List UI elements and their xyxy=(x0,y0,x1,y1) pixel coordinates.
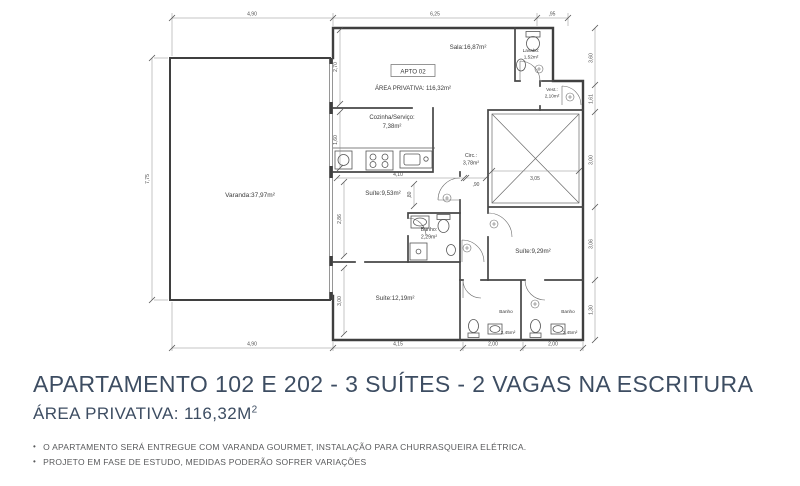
room-label-suite-1219: Suíte:12,19m² xyxy=(376,295,415,302)
area-privativa-line: ÁREA PRIVATIVA: 116,32M2 xyxy=(33,404,778,424)
note-text: O APARTAMENTO SERÁ ENTREGUE COM VARANDA … xyxy=(43,442,526,452)
room-label-vest-area: 2,10m² xyxy=(545,94,560,99)
dim-label: 2,86 xyxy=(337,214,343,224)
bullet-icon: • xyxy=(33,442,36,452)
stove-icon xyxy=(366,151,393,170)
dim-label: ,95 xyxy=(549,12,556,18)
room-label-lavabo: Lavabo: xyxy=(523,48,540,53)
toilet-icon xyxy=(530,333,541,338)
dim-label: 4,90 xyxy=(247,342,257,348)
dim-label: 2,00 xyxy=(488,342,498,348)
washer-icon xyxy=(335,151,352,169)
dim-label: 4,10 xyxy=(393,172,403,178)
bidet-icon xyxy=(447,245,456,256)
room-label-cozinha: Cozinha/Serviço: xyxy=(369,115,415,121)
dim-label: 3,00 xyxy=(337,296,343,306)
apto-label: APTO 02 xyxy=(400,69,426,76)
symbol-circle xyxy=(490,220,498,228)
sink-icon xyxy=(400,151,432,168)
plan-area-label: ÁREA PRIVATIVA: 116,32m² xyxy=(375,85,451,92)
dim-label: 3,06 xyxy=(589,239,595,249)
room-label-varanda: Varanda:37,97m² xyxy=(225,192,276,199)
dim-label: 2,00 xyxy=(548,342,558,348)
service-shaft xyxy=(492,114,579,203)
dim-label: 3,60 xyxy=(589,53,595,63)
headline: APARTAMENTO 102 E 202 - 3 SUÍTES - 2 VAG… xyxy=(33,372,778,396)
symbol-circle xyxy=(463,244,471,252)
area-privativa-text: ÁREA PRIVATIVA: 116,32M xyxy=(33,404,252,423)
dim-label: 1,61 xyxy=(589,94,595,104)
symbol-circle xyxy=(566,93,574,101)
room-label-cozinha-area: 7,38m² xyxy=(383,124,402,130)
toilet-icon xyxy=(468,333,479,338)
footer-text-block: APARTAMENTO 102 E 202 - 3 SUÍTES - 2 VAG… xyxy=(33,372,778,472)
notes-list: •O APARTAMENTO SERÁ ENTREGUE COM VARANDA… xyxy=(33,442,778,467)
room-labels: APTO 02 ÁREA PRIVATIVA: 116,32m² Varanda… xyxy=(225,44,578,335)
dim-label: 1,30 xyxy=(589,305,595,315)
dim-label: 2,70 xyxy=(333,62,339,72)
room-label-suite-953: Suíte:9,53m² xyxy=(365,190,400,197)
dim-label: 7,75 xyxy=(145,174,151,184)
room-label-banho-esq-area: 2,45m² xyxy=(501,330,516,335)
room-label-suite-929: Suíte:9,29m² xyxy=(515,248,550,255)
room-label-vest: Vest.: xyxy=(546,87,558,92)
room-label-banho-suite-area: 2,29m² xyxy=(421,235,437,241)
dim-label: 1,60 xyxy=(333,135,339,145)
symbol-circle xyxy=(531,300,539,308)
toilet-icon xyxy=(437,215,450,220)
symbol-circle xyxy=(443,194,451,202)
dimension-labels: 4,90 6,25 ,95 4,90 4,15 2,00 2,00 7,75 3… xyxy=(145,12,595,348)
room-label-banho-dir: Banho xyxy=(561,309,575,314)
note-item: •O APARTAMENTO SERÁ ENTREGUE COM VARANDA… xyxy=(33,442,778,452)
room-label-banho-esq: Banho xyxy=(499,309,513,314)
kitchen-fixtures xyxy=(333,148,435,170)
room-label-banho-suite: Banho: xyxy=(421,227,437,233)
dim-label: 6,25 xyxy=(430,12,440,18)
room-label-circ: Circ.: xyxy=(465,153,477,159)
dim-label: ,90 xyxy=(473,182,480,188)
banho-dir-fixtures xyxy=(530,320,565,338)
room-label-lavabo-area: 1,52m² xyxy=(524,55,539,60)
floor-plan-drawing: 4,90 6,25 ,95 4,90 4,15 2,00 2,00 7,75 3… xyxy=(0,0,800,370)
dim-label: 4,15 xyxy=(393,342,403,348)
bullet-icon: • xyxy=(33,457,36,467)
room-label-banho-dir-area: 2,45m² xyxy=(563,330,578,335)
dim-label: 3,00 xyxy=(589,155,595,165)
flyer-page: 4,90 6,25 ,95 4,90 4,15 2,00 2,00 7,75 3… xyxy=(0,0,800,486)
note-item: •PROJETO EM FASE DE ESTUDO, MEDIDAS PODE… xyxy=(33,457,778,467)
interior-walls xyxy=(333,28,583,340)
dim-label: 3,05 xyxy=(530,176,540,182)
banho-esq-fixtures xyxy=(468,320,502,338)
area-superscript: 2 xyxy=(252,404,258,415)
dim-label: ,80 xyxy=(407,191,413,198)
shower-icon xyxy=(410,243,427,260)
room-label-sala: Sala:16,87m² xyxy=(450,44,487,51)
room-label-circ-area: 3,78m² xyxy=(463,161,479,167)
dim-label: 4,90 xyxy=(247,12,257,18)
note-text: PROJETO EM FASE DE ESTUDO, MEDIDAS PODER… xyxy=(43,457,366,467)
